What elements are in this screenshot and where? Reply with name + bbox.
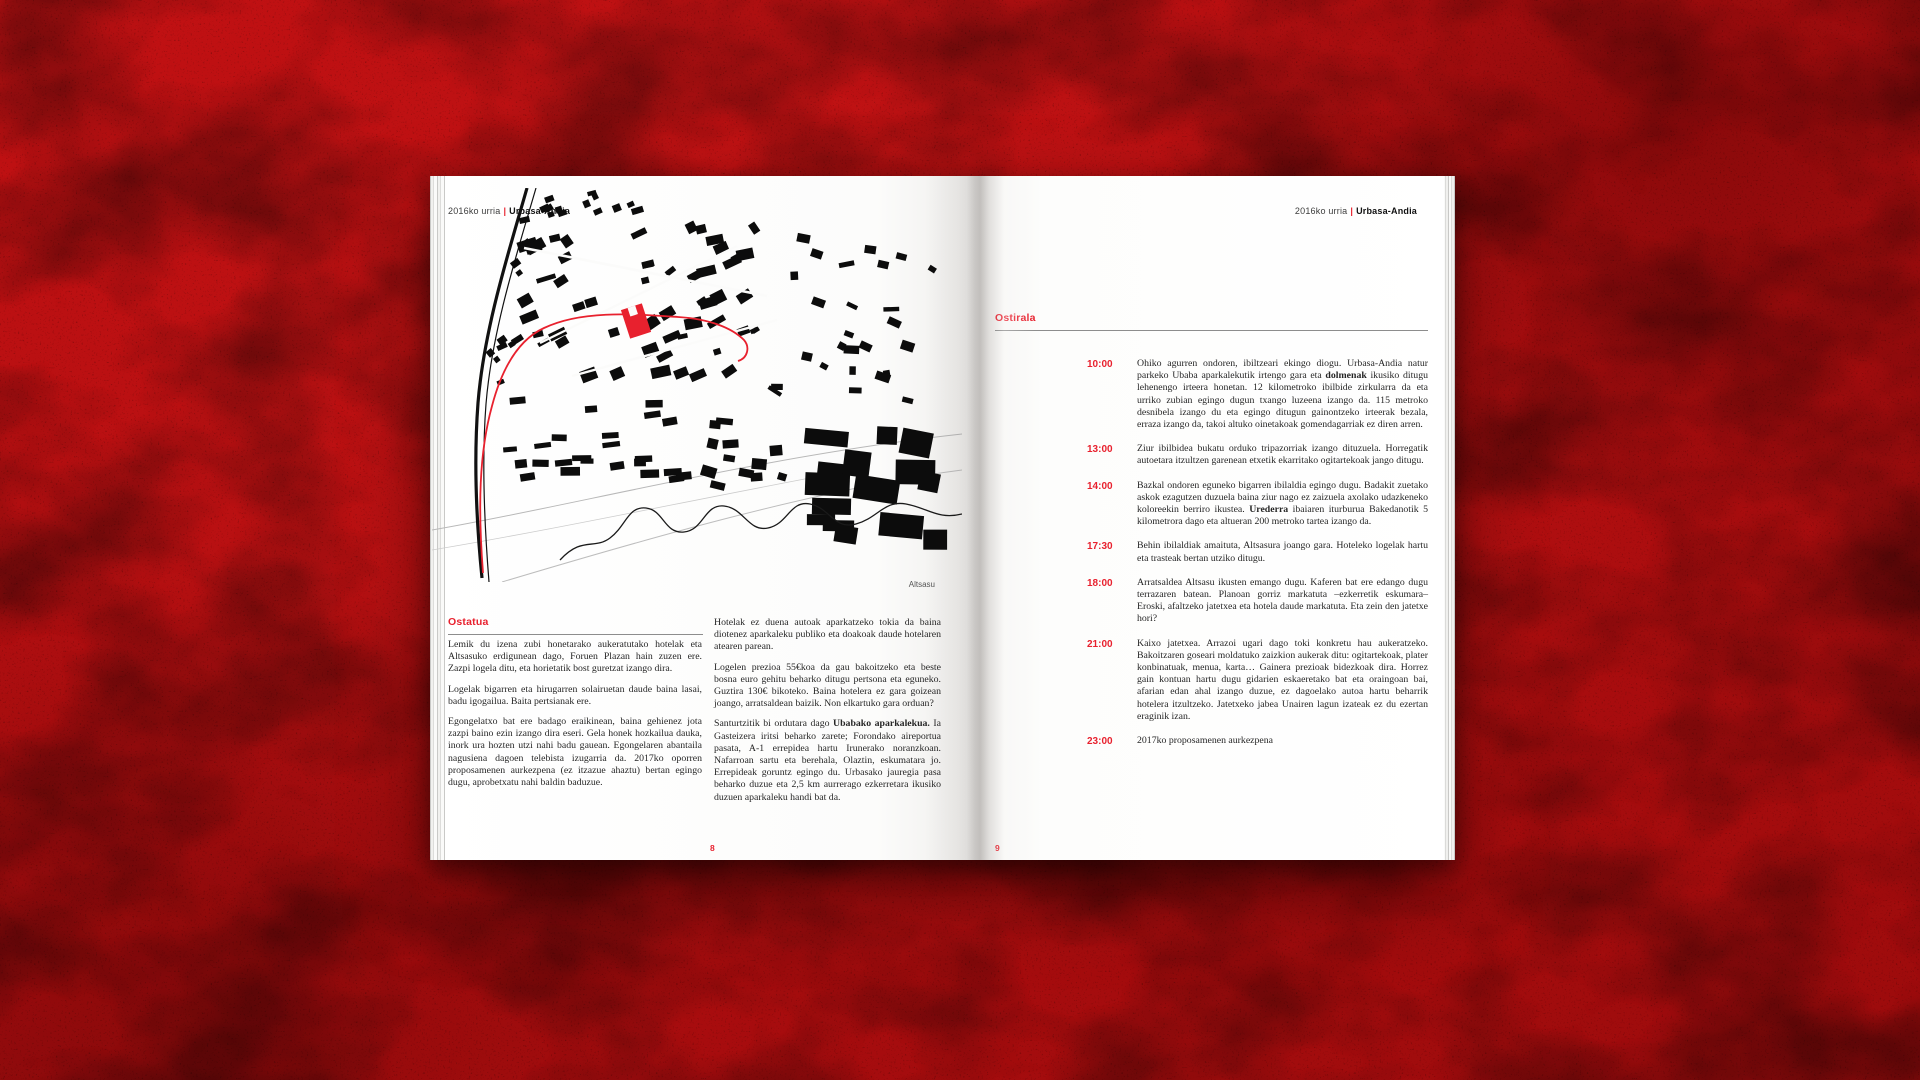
running-header-right: 2016ko urria|Urbasa-Andia	[1295, 206, 1417, 216]
schedule-time: 13:00	[1087, 443, 1137, 467]
left-page-column-1: Lemik du izena zubi honetarako aukeratut…	[448, 639, 702, 797]
schedule-time: 10:00	[1087, 358, 1137, 431]
hotel-highlight-building	[621, 303, 651, 338]
schedule-time: 17:30	[1087, 540, 1137, 564]
text-run: Hotelak ez duena autoak aparkatzeko toki…	[714, 617, 941, 652]
text-run: Ziur ibilbidea bukatu orduko tripazorria…	[1137, 443, 1428, 466]
body-paragraph: Egongelatxo bat ere badago eraikinean, b…	[448, 716, 702, 789]
schedule-description: Behin ibilaldiak amaituta, Altsasura joa…	[1137, 540, 1428, 564]
schedule-time: 23:00	[1087, 735, 1137, 747]
text-run: Egongelatxo bat ere badago eraikinean, b…	[448, 716, 702, 788]
header-title: Urbasa-Andia	[1356, 206, 1417, 216]
section-heading-ostirala: Ostirala	[995, 312, 1428, 331]
schedule-time: 18:00	[1087, 577, 1137, 626]
text-run: Arratsaldea Altsasu ikusten emango dugu.…	[1137, 577, 1428, 625]
schedule-row: 13:00Ziur ibilbidea bukatu orduko tripaz…	[995, 443, 1428, 467]
schedule-row: 14:00Bazkal ondoren eguneko bigarren ibi…	[995, 480, 1428, 529]
schedule-row: 10:00Ohiko agurren ondoren, ibiltzeari e…	[995, 358, 1428, 431]
schedule-description: 2017ko proposamenen aurkezpena	[1137, 735, 1428, 747]
page-left: 2016ko urria|Urbasa-Andia Altsasu Ostatu…	[430, 176, 975, 860]
book-spread: 2016ko urria|Urbasa-Andia Altsasu Ostatu…	[430, 176, 1455, 860]
friday-schedule: 10:00Ohiko agurren ondoren, ibiltzeari e…	[995, 358, 1428, 759]
page-number-left: 8	[710, 843, 715, 853]
bold-text-run: dolmenak	[1325, 370, 1366, 381]
schedule-time: 14:00	[1087, 480, 1137, 529]
text-run: Logelak bigarren eta hirugarren solairue…	[448, 684, 702, 707]
schedule-row: 18:00Arratsaldea Altsasu ikusten emango …	[995, 577, 1428, 626]
schedule-description: Arratsaldea Altsasu ikusten emango dugu.…	[1137, 577, 1428, 626]
schedule-row: 21:00Kaixo jatetxea. Arrazoi ugari dago …	[995, 638, 1428, 723]
header-separator: |	[1347, 206, 1356, 216]
text-run: Logelen prezioa 55€koa da gau bakoitzeko…	[714, 662, 941, 710]
body-paragraph: Logelak bigarren eta hirugarren solairue…	[448, 684, 702, 708]
schedule-description: Bazkal ondoren eguneko bigarren ibilaldi…	[1137, 480, 1428, 529]
schedule-description: Ohiko agurren ondoren, ibiltzeari ekingo…	[1137, 358, 1428, 431]
altsasu-map-illustration	[432, 188, 962, 582]
body-paragraph: Santurtzitik bi ordutara dago Ubabako ap…	[714, 718, 941, 803]
body-paragraph: Logelen prezioa 55€koa da gau bakoitzeko…	[714, 662, 941, 711]
text-run: Santurtzitik bi ordutara dago	[714, 718, 833, 729]
text-run: Lemik du izena zubi honetarako aukeratut…	[448, 639, 702, 674]
schedule-time: 21:00	[1087, 638, 1137, 723]
text-run: Ia Gasteizera iritsi beharko zarete; For…	[714, 718, 941, 802]
schedule-description: Ziur ibilbidea bukatu orduko tripazorria…	[1137, 443, 1428, 467]
schedule-description: Kaixo jatetxea. Arrazoi ugari dago toki …	[1137, 638, 1428, 723]
left-page-column-2: Hotelak ez duena autoak aparkatzeko toki…	[714, 617, 941, 812]
map-caption: Altsasu	[430, 580, 935, 589]
bold-text-run: Ubabako aparkalekua.	[833, 718, 930, 729]
screenshot-stage: 2016ko urria|Urbasa-Andia Altsasu Ostatu…	[0, 0, 1920, 1080]
schedule-row: 23:002017ko proposamenen aurkezpena	[995, 735, 1428, 747]
text-run: Kaixo jatetxea. Arrazoi ugari dago toki …	[1137, 638, 1428, 722]
page-stack-edge-right	[1444, 176, 1455, 860]
schedule-row: 17:30Behin ibilaldiak amaituta, Altsasur…	[995, 540, 1428, 564]
header-date: 2016ko urria	[1295, 206, 1347, 216]
page-number-right: 9	[995, 843, 1000, 853]
bold-text-run: Urederra	[1249, 504, 1288, 515]
section-heading-ostatua: Ostatua	[448, 616, 703, 635]
body-paragraph: Lemik du izena zubi honetarako aukeratut…	[448, 639, 702, 676]
text-run: Behin ibilaldiak amaituta, Altsasura joa…	[1137, 540, 1428, 563]
text-run: 2017ko proposamenen aurkezpena	[1137, 735, 1273, 746]
body-paragraph: Hotelak ez duena autoak aparkatzeko toki…	[714, 617, 941, 654]
page-right: 2016ko urria|Urbasa-Andia Ostirala 10:00…	[975, 176, 1455, 860]
